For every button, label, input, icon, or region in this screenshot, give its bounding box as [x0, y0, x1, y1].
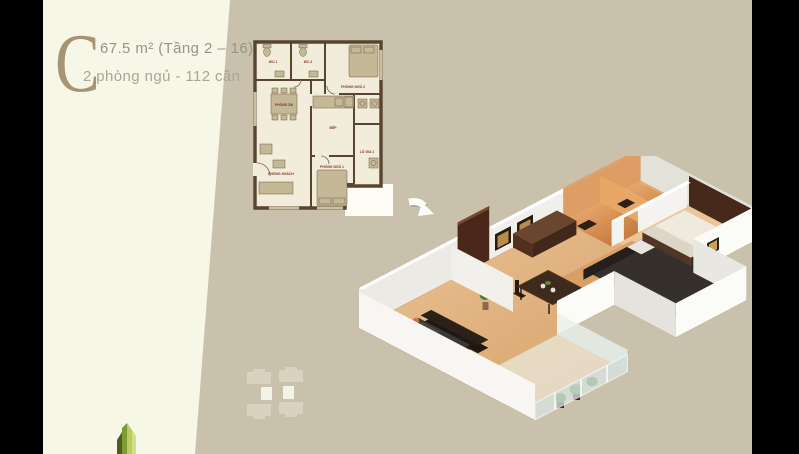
- apartment-3d-render: [345, 156, 752, 454]
- room-label-kitchen: BẾP: [330, 125, 338, 130]
- unit-area-text: 67.5 m² (Tầng 2 – 16): [100, 40, 253, 57]
- room-label-dining: PHÒNG ĂN: [275, 102, 294, 107]
- developer-logo-towers: [111, 422, 143, 454]
- unit-type-letter: C: [55, 22, 100, 106]
- slide-canvas: C 67.5 m² (Tầng 2 – 16) 2 phòng ngủ - 11…: [43, 0, 752, 454]
- room-label-bedroom2: PHÒNG NGỦ 2: [341, 84, 365, 89]
- brochure-slide: C 67.5 m² (Tầng 2 – 16) 2 phòng ngủ - 11…: [0, 0, 799, 454]
- room-label-living: PHÒNG KHÁCH: [268, 171, 294, 176]
- room-label-wc1: WC.1: [269, 60, 278, 64]
- room-label-bedroom1: PHÒNG NGỦ 1: [320, 164, 344, 169]
- room-label-wc2: WC.2: [304, 60, 313, 64]
- room-label-loggia: LÔ GIA 1: [360, 149, 374, 154]
- unit-detail-text: 2 phòng ngủ - 112 căn: [83, 68, 240, 85]
- building-footprint-keyplan: [245, 366, 317, 424]
